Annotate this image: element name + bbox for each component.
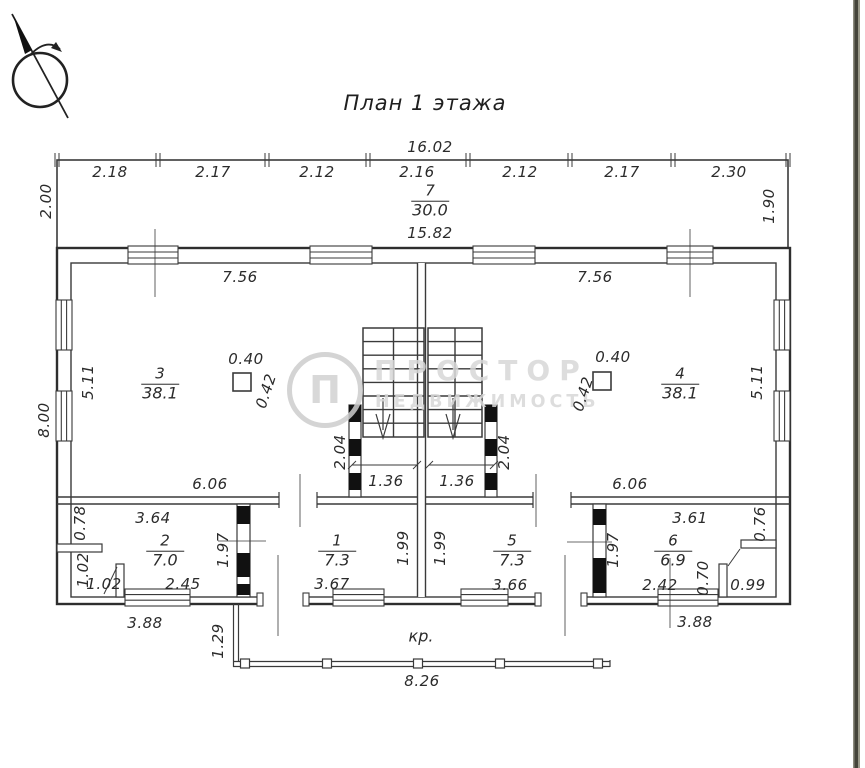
room-number: 2 <box>146 534 184 552</box>
room-number: 1 <box>318 534 356 552</box>
dimension-label: 16.02 <box>407 138 452 156</box>
dimension-label: 1.36 <box>439 472 474 490</box>
stairwell-jamb-left <box>349 405 361 497</box>
room-area: 38.1 <box>141 385 179 402</box>
dimension-label: 2.42 <box>642 576 677 594</box>
dimension-label: 0.40 <box>228 350 263 368</box>
room-number: 3 <box>141 367 179 385</box>
watermark-logo-icon: П <box>287 352 363 428</box>
dimension-label: 2.00 <box>37 183 55 218</box>
dimension-label: 3.88 <box>677 613 712 631</box>
dimension-label: 2.18 <box>92 163 127 181</box>
dimension-label: 6.06 <box>192 475 227 493</box>
room-area: 30.0 <box>411 202 449 219</box>
dimension-label: 7.56 <box>222 268 257 286</box>
room-label: 338.1 <box>141 366 179 403</box>
watermark-subtitle-text: НЕДВИЖИМОСТЬ <box>375 392 600 412</box>
dimension-label: 0.76 <box>751 506 769 541</box>
dimension-label: 8.26 <box>404 672 439 690</box>
dimension-label: 1.36 <box>368 472 403 490</box>
room-area: 7.3 <box>493 552 531 569</box>
column-left <box>233 373 251 391</box>
room-label: 730.0 <box>411 183 449 220</box>
dimension-label: 0.78 <box>71 505 89 540</box>
room-area: 7.0 <box>146 552 184 569</box>
dimension-label: 1.97 <box>214 532 232 567</box>
dimension-label: 8.00 <box>35 402 53 437</box>
dimension-label: 2.04 <box>495 434 513 469</box>
dimension-label: 2.16 <box>399 163 434 181</box>
dimension-label: 2.30 <box>711 163 746 181</box>
dimension-label: 2.12 <box>299 163 334 181</box>
room-label: 438.1 <box>661 366 699 403</box>
dimension-label: 3.67 <box>314 575 349 593</box>
floor-plan-page: План 1 этажа <box>0 0 865 768</box>
watermark-logo-letter: П <box>309 368 341 412</box>
dimension-label: 3.66 <box>492 576 527 594</box>
dimension-label: 5.11 <box>748 364 766 399</box>
room-area: 7.3 <box>318 552 356 569</box>
dimension-label: 0.40 <box>595 348 630 366</box>
watermark-brand-text: ПРОСТОР <box>374 354 589 387</box>
room-label: 66.9 <box>654 533 692 570</box>
room-label: 17.3 <box>318 533 356 570</box>
dimension-label: 2.17 <box>604 163 639 181</box>
dimension-label: 2.04 <box>331 434 349 469</box>
room-label: 57.3 <box>493 533 531 570</box>
porch-label: кр. <box>409 627 434 646</box>
dimension-label: 1.90 <box>760 188 778 223</box>
dimension-label: 0.99 <box>730 576 765 594</box>
dimension-label: 1.99 <box>431 530 449 565</box>
scan-border-strip <box>853 0 860 768</box>
room-area: 38.1 <box>661 385 699 402</box>
room-number: 7 <box>411 184 449 202</box>
room-area: 6.9 <box>654 552 692 569</box>
dimension-label: 15.82 <box>407 224 452 242</box>
room-number: 4 <box>661 367 699 385</box>
room-label: 27.0 <box>146 533 184 570</box>
dimension-label: 7.56 <box>577 268 612 286</box>
dimension-label: 3.64 <box>135 509 170 527</box>
dimension-label: 5.11 <box>79 364 97 399</box>
dimension-label: 1.02 <box>86 575 121 593</box>
dimension-label: 3.61 <box>672 509 707 527</box>
room-number: 5 <box>493 534 531 552</box>
dimension-label: 6.06 <box>612 475 647 493</box>
dimension-label: 2.17 <box>195 163 230 181</box>
dimension-label: 1.97 <box>604 532 622 567</box>
dimension-label: 1.29 <box>209 623 227 658</box>
room-number: 6 <box>654 534 692 552</box>
wall-room2-room1 <box>237 504 250 597</box>
dimension-label: 0.70 <box>694 560 712 595</box>
dimension-label: 2.45 <box>165 575 200 593</box>
page-title: План 1 этажа <box>344 91 507 115</box>
dimension-label: 3.88 <box>127 614 162 632</box>
dimension-label: 1.99 <box>394 530 412 565</box>
dimension-label: 2.12 <box>502 163 537 181</box>
north-arrow-icon <box>4 4 84 129</box>
